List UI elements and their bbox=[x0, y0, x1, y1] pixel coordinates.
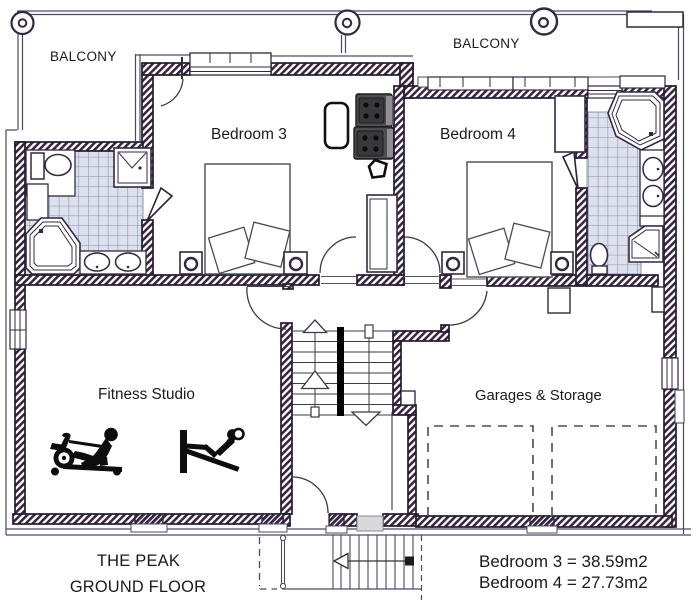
svg-text:Bedroom 4 = 27.73m2: Bedroom 4 = 27.73m2 bbox=[479, 573, 648, 592]
svg-text:THE PEAK: THE PEAK bbox=[97, 552, 180, 570]
svg-text:Fitness Studio: Fitness Studio bbox=[98, 386, 195, 403]
svg-text:GROUND FLOOR: GROUND FLOOR bbox=[70, 578, 206, 596]
svg-text:BALCONY: BALCONY bbox=[453, 36, 520, 51]
svg-text:BALCONY: BALCONY bbox=[50, 49, 117, 64]
svg-text:Bedroom 4: Bedroom 4 bbox=[440, 126, 516, 143]
svg-text:Bedroom 3 = 38.59m2: Bedroom 3 = 38.59m2 bbox=[479, 552, 648, 571]
svg-text:Garages & Storage: Garages & Storage bbox=[475, 388, 602, 404]
svg-text:Bedroom 3: Bedroom 3 bbox=[211, 126, 287, 143]
